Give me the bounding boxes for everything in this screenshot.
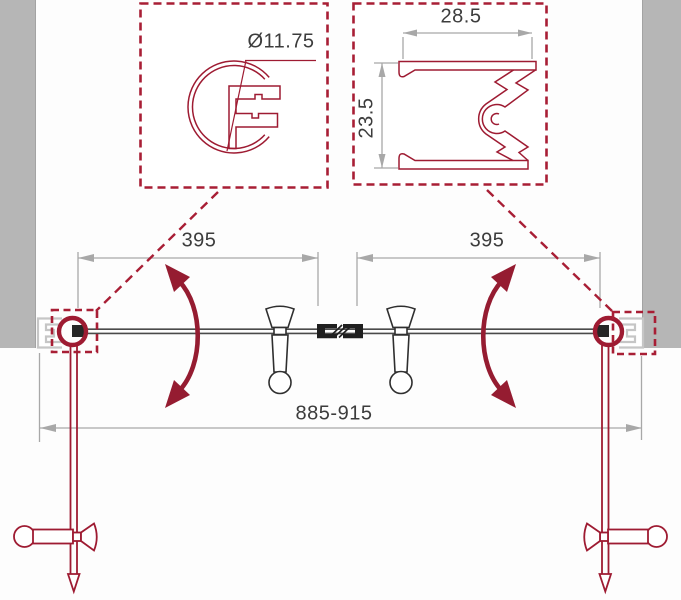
- arrow-overall-l: [40, 424, 56, 432]
- right-swing-arrow: [483, 264, 516, 408]
- overall-width-label: 885-915: [296, 403, 373, 426]
- left-open-door-tip: [68, 574, 80, 592]
- right-swing-arc: [483, 281, 502, 391]
- right-handle-stem: [395, 328, 407, 335]
- left-swing-arc: [179, 281, 198, 391]
- magnet-seal: [317, 324, 363, 338]
- technical-drawing-canvas: Ø11.75 28.5 23.5 395 395 885-915: [0, 0, 681, 600]
- arrow-right-395-l: [357, 254, 373, 262]
- arrow-left-395-r: [302, 254, 318, 262]
- drawing-svg: [0, 0, 681, 600]
- left-red-handle-knob: [14, 526, 35, 547]
- right-wall: [643, 0, 681, 348]
- right-red-handle-stem: [600, 533, 608, 542]
- left-wall-block: [0, 0, 35, 348]
- left-handle-bar: [272, 335, 288, 372]
- right-handle-knob-circle: [390, 372, 412, 394]
- left-handle-knob-circle: [269, 372, 291, 394]
- magnet-seal-left-half: [317, 324, 337, 338]
- right-red-handle-bar: [608, 530, 648, 544]
- left-open-door-handle: [14, 524, 97, 551]
- left-door-width-label: 395: [182, 230, 217, 253]
- left-swing-arrow: [165, 264, 198, 408]
- right-red-handle-cap: [584, 524, 600, 551]
- right-handle-cap: [387, 306, 415, 327]
- diameter-label: Ø11.75: [247, 31, 314, 54]
- arrow-right-395-r: [584, 254, 600, 262]
- arrow-overall-r: [626, 424, 642, 432]
- right-open-door: [584, 344, 667, 592]
- left-red-handle-cap: [81, 524, 97, 551]
- right-handle-bar: [393, 335, 409, 372]
- left-red-handle-stem: [73, 533, 81, 542]
- right-callout-leader: [487, 190, 612, 311]
- left-handle-cap: [266, 306, 294, 327]
- left-door-handle: [266, 306, 294, 393]
- wall-profile-width-label: 28.5: [441, 6, 482, 29]
- wall-profile-height-label: 23.5: [356, 98, 379, 139]
- callout-leaders: [96, 190, 612, 311]
- right-door-handle: [387, 306, 415, 393]
- left-open-door: [14, 344, 97, 592]
- arrow-left-395-l: [78, 254, 94, 262]
- right-detail-callout: [354, 4, 547, 185]
- right-open-door-tip: [600, 574, 612, 592]
- right-door-width-label: 395: [470, 230, 505, 253]
- left-red-handle-bar: [33, 530, 73, 544]
- right-open-door-handle: [584, 524, 667, 551]
- left-wall: [0, 0, 36, 348]
- right-red-handle-knob: [646, 526, 667, 547]
- right-wall-block: [643, 0, 681, 348]
- left-handle-stem: [274, 328, 286, 335]
